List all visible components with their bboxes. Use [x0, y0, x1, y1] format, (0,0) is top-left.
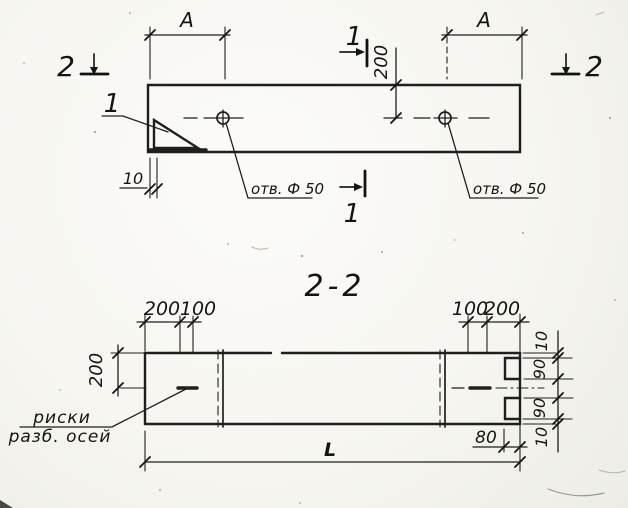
dim-a-right-label: A — [475, 8, 491, 32]
top-right-mark — [596, 12, 604, 15]
dim-tl-100-label: 100 — [180, 298, 216, 320]
dim-a-left: A — [145, 8, 230, 79]
hole-left-label: отв. Ф 50 — [251, 180, 324, 198]
dim-length-l: L — [140, 431, 525, 471]
section-marker-2-right-label: 2 — [585, 50, 603, 83]
section-marker-1-top-label: 1 — [346, 22, 363, 52]
engineering-drawing: 1 отв. Ф 50 отв. Ф 50 A — [0, 0, 628, 508]
dim-200-left-extensions — [111, 353, 146, 388]
axis-note-callout: риски разб. осей — [8, 389, 186, 447]
pencil-squiggle-1 — [548, 489, 604, 496]
pencil-squiggle-3 — [252, 247, 268, 249]
hole-right-callout: отв. Ф 50 — [448, 123, 546, 198]
dims-top-right: 100 200 — [452, 298, 529, 352]
dim-a-left-label: A — [178, 8, 194, 32]
dim-a-right: A — [442, 8, 527, 79]
hole-left-centerlines — [184, 110, 243, 127]
section-view: риски разб. осей 200 200 100 100 200 — [8, 298, 573, 471]
dim-r-10-top-label: 10 — [532, 331, 551, 351]
plan-view: 1 отв. Ф 50 отв. Ф 50 A — [57, 8, 603, 229]
dim-200-left-label: 200 — [86, 353, 107, 387]
dim-r-90-top-label: 90 — [530, 359, 549, 379]
dim-tl-200-label: 200 — [144, 298, 180, 320]
detail-callout-1: 1 — [102, 89, 168, 132]
hole-right-label: отв. Ф 50 — [473, 180, 546, 198]
dim-200-label: 200 — [371, 45, 392, 79]
break-lines-left — [218, 350, 223, 427]
section-title: 2-2 — [305, 269, 366, 304]
dim-10-edge: 10 — [120, 158, 162, 198]
drawing-sheet: 1 отв. Ф 50 отв. Ф 50 A — [0, 0, 628, 508]
dims-right-edge: 10 90 90 10 — [523, 331, 573, 452]
axis-note-line1: риски — [32, 408, 91, 428]
section-marker-1-bottom: 1 — [340, 171, 365, 229]
hole-right — [384, 110, 489, 127]
dims-top-left: 200 100 — [137, 298, 216, 352]
pencil-squiggle-2 — [599, 470, 625, 473]
section-marker-2-left-label: 2 — [57, 50, 75, 83]
dim-r-10-bot-label: 10 — [532, 427, 551, 447]
corner-fold-mark — [0, 500, 13, 508]
dim-r-90-bot-label: 90 — [530, 398, 549, 418]
section-marker-1-top: 1 — [340, 22, 367, 66]
hole-left-callout: отв. Ф 50 — [226, 123, 324, 198]
hole-left — [184, 110, 243, 127]
detail-callout-label: 1 — [104, 89, 121, 119]
dim-tr-100-label: 100 — [452, 298, 488, 320]
dim-tr-200-label: 200 — [484, 298, 520, 320]
dim-10-ticks — [145, 184, 162, 194]
dim-200-left-section: 200 — [86, 345, 146, 396]
hole-right-centerlines — [384, 110, 489, 127]
section-marker-1-bottom-label: 1 — [344, 199, 361, 229]
axis-note-line2: разб. осей — [8, 427, 112, 447]
corner-triangle-mark — [154, 120, 198, 148]
section-marker-2-left: 2 — [57, 50, 108, 83]
section-marker-1-bottom-arrowhead — [354, 183, 363, 191]
break-lines-right — [440, 350, 445, 427]
dim-80-label: 80 — [475, 428, 497, 448]
section-marker-2-right: 2 — [552, 50, 603, 83]
dim-l-label: L — [324, 439, 336, 461]
dim-10-label: 10 — [123, 169, 143, 188]
